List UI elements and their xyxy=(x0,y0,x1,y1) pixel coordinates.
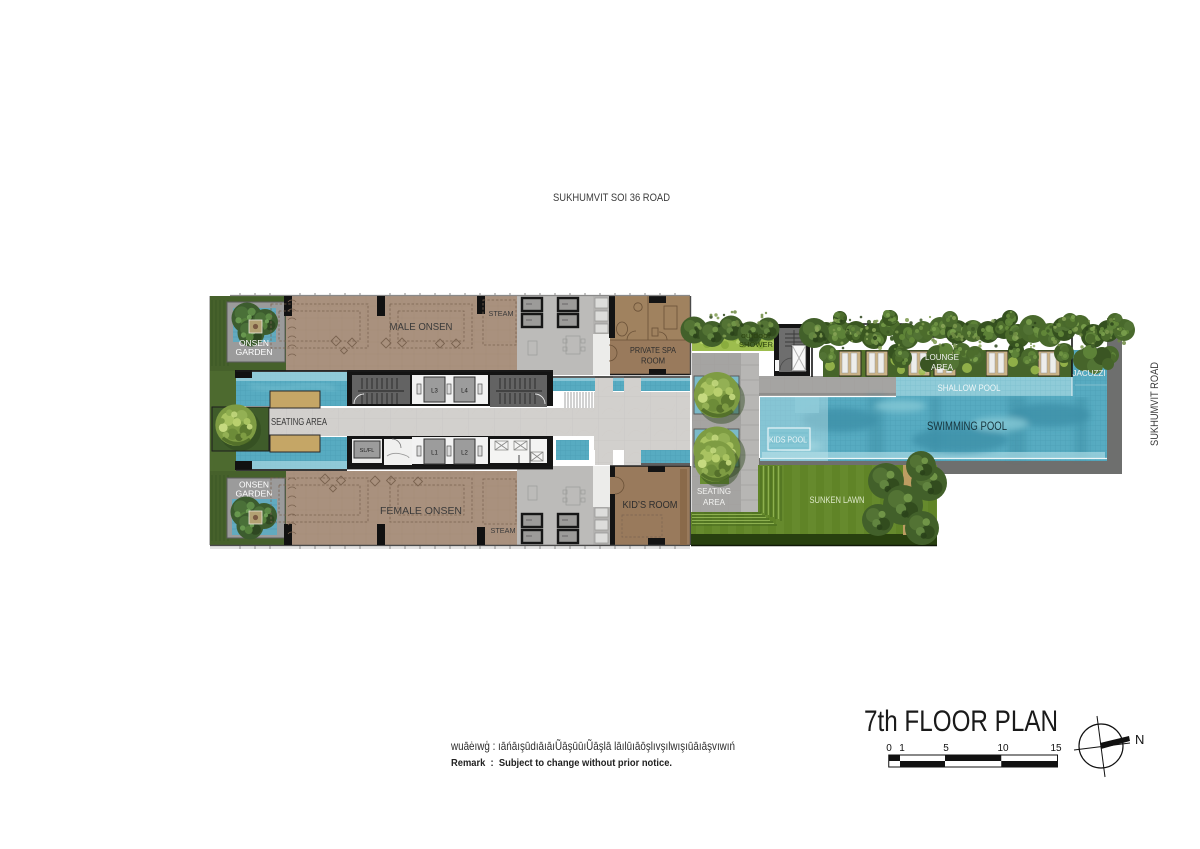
svg-text:SHOWER: SHOWER xyxy=(739,340,774,349)
svg-text:SEATING: SEATING xyxy=(697,486,731,496)
svg-text:PRIVATE SPA: PRIVATE SPA xyxy=(630,345,676,355)
svg-text:N: N xyxy=(1135,732,1144,747)
svg-text:L2: L2 xyxy=(461,451,468,457)
svg-text:STEAM: STEAM xyxy=(491,526,516,535)
svg-text:15: 15 xyxy=(1050,743,1062,754)
svg-text:5: 5 xyxy=(943,743,949,754)
svg-text:7th FLOOR PLAN: 7th FLOOR PLAN xyxy=(864,705,1058,738)
svg-text:GARDEN: GARDEN xyxy=(236,489,273,499)
svg-text:GARDEN: GARDEN xyxy=(236,347,273,357)
svg-text:SL/FL: SL/FL xyxy=(360,448,375,454)
svg-text:KIDS POOL: KIDS POOL xyxy=(769,436,807,445)
svg-text:SUKHUMVIT SOI 36 ROAD: SUKHUMVIT SOI 36 ROAD xyxy=(553,192,670,204)
svg-text:Remark : Subject to change w: Remark : Subject to change without prior… xyxy=(451,758,672,769)
svg-text:SHALLOW POOL: SHALLOW POOL xyxy=(938,383,1001,394)
svg-text:1: 1 xyxy=(899,743,905,754)
svg-text:LOUNGE: LOUNGE xyxy=(925,352,959,362)
svg-text:SWIMMING POOL: SWIMMING POOL xyxy=(927,421,1007,433)
svg-text:L1: L1 xyxy=(431,451,438,457)
svg-text:L4: L4 xyxy=(461,389,468,395)
svg-text:ROOM: ROOM xyxy=(641,356,665,366)
svg-text:0: 0 xyxy=(886,743,892,754)
svg-text:STEAM: STEAM xyxy=(489,309,514,318)
svg-text:MALE ONSEN: MALE ONSEN xyxy=(390,321,453,333)
svg-text:JACUZZI: JACUZZI xyxy=(1073,368,1106,378)
svg-text:SUNKEN LAWN: SUNKEN LAWN xyxy=(810,495,865,506)
svg-text:AREA: AREA xyxy=(703,497,725,507)
svg-text:AREA: AREA xyxy=(931,362,953,372)
svg-text:L3: L3 xyxy=(431,389,438,395)
svg-text:SUKHUMVIT ROAD: SUKHUMVIT ROAD xyxy=(1149,362,1161,446)
svg-text:KID’S ROOM: KID’S ROOM xyxy=(623,499,678,511)
svg-text:SEATING AREA: SEATING AREA xyxy=(271,417,327,428)
svg-text:wuāėıwģ : ıāńāışūdıāıāıŨāşūūıŨ: wuāėıwģ : ıāńāışūdıāıāıŨāşūūıŨāşlā lāılū… xyxy=(450,738,735,753)
svg-text:10: 10 xyxy=(997,743,1009,754)
svg-text:outdoor: outdoor xyxy=(741,331,772,340)
